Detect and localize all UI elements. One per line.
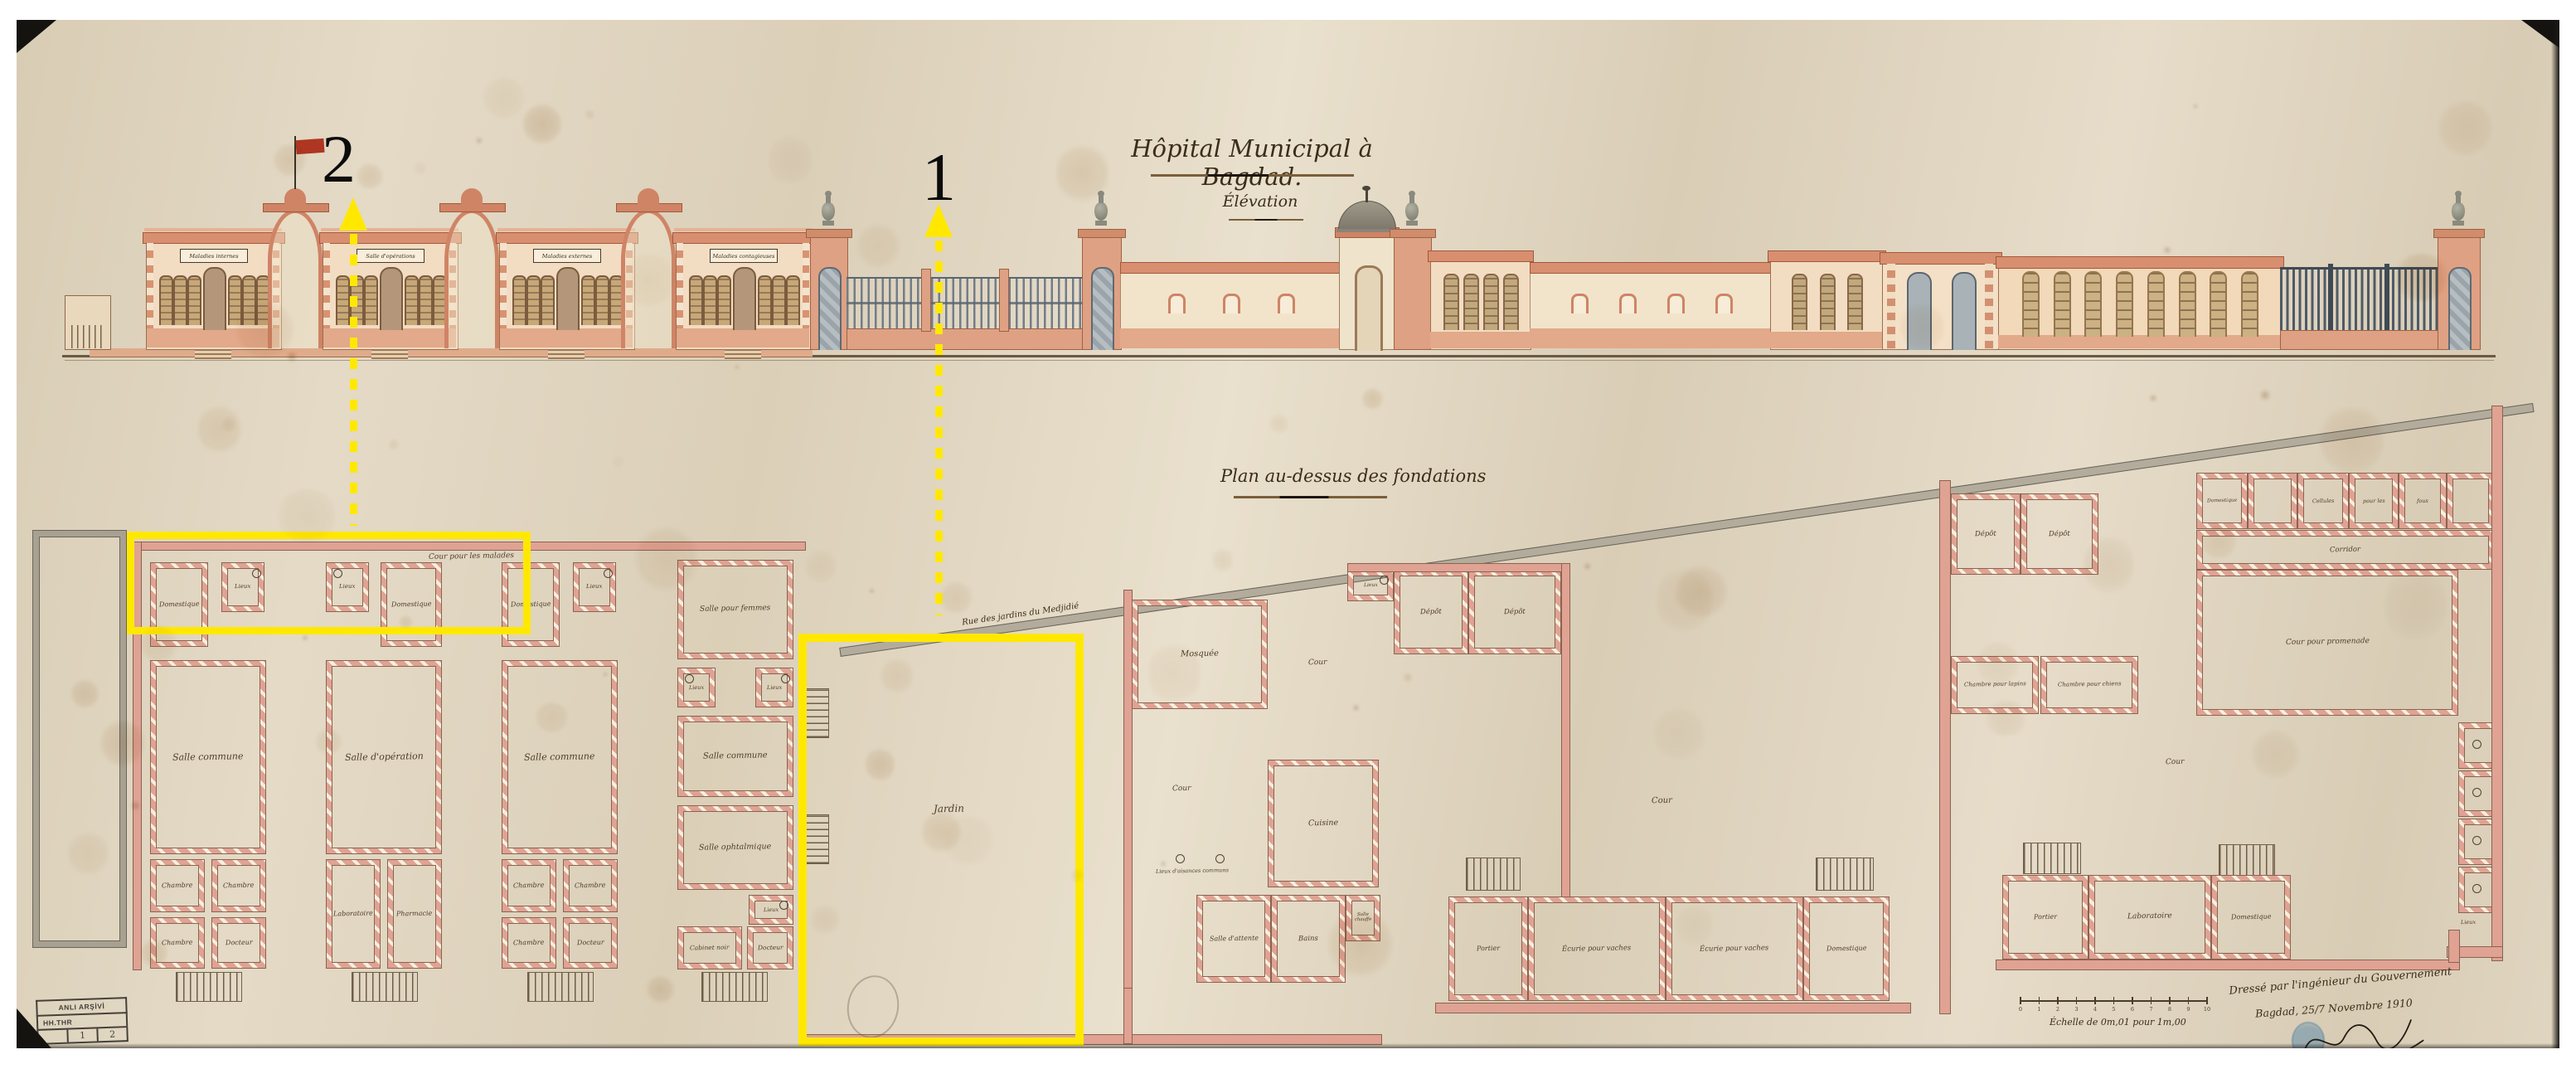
- highlight-box: [798, 634, 1084, 1046]
- scan-edge-right: [2551, 20, 2559, 1048]
- annotation-number: 2: [322, 126, 356, 192]
- scanned-drawing-photo: Hôpital Municipal à Bagdad. Élévation Pl…: [0, 0, 2576, 1069]
- scan-edge-bottom: [17, 1043, 2559, 1048]
- arrow-dotted-line: [350, 234, 357, 526]
- annotation-number: 1: [922, 144, 956, 211]
- highlight-box: [127, 532, 531, 634]
- scan-corner-bl: [17, 1008, 51, 1048]
- arrow-head: [924, 204, 953, 237]
- annotation-layer: 2 1: [17, 20, 2559, 1048]
- arrow-head: [339, 197, 367, 231]
- parchment-sheet: Hôpital Municipal à Bagdad. Élévation Pl…: [17, 20, 2559, 1048]
- arrow-dotted-line: [935, 241, 943, 615]
- scan-corner-tl: [17, 20, 56, 53]
